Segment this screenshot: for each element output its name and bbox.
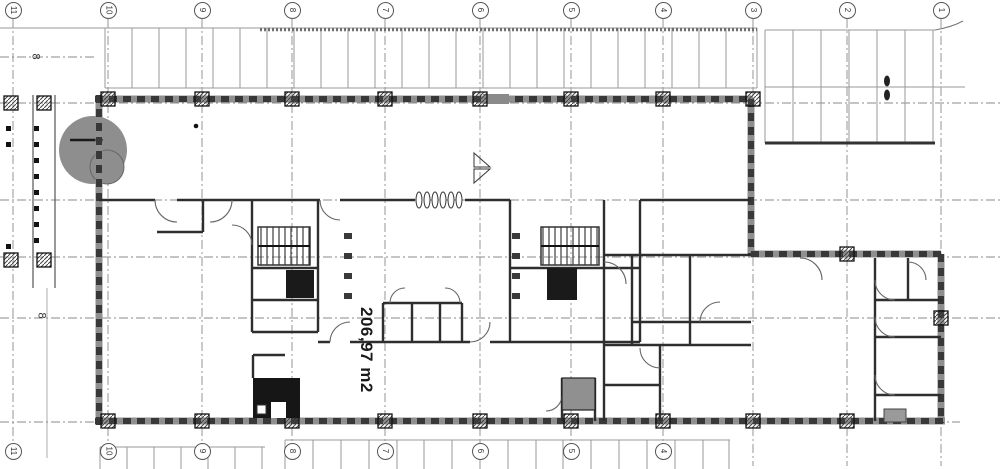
grid-label: 9 [198, 449, 206, 453]
grid-lines [0, 19, 1000, 466]
stair-core-right [541, 227, 599, 300]
grid-bubble-top: 6 [472, 2, 489, 19]
grid-label: 2 [843, 8, 851, 12]
grid-label: 10 [104, 447, 112, 456]
wall-stubs [344, 233, 520, 299]
grid-label: 9 [198, 8, 206, 12]
grid-bubble-top: 2 [839, 2, 856, 19]
grid-label: 5 [567, 449, 575, 453]
grid-label: 4 [659, 449, 667, 453]
area-label: 206,97 m2 [356, 307, 376, 393]
grid-label: 6 [476, 449, 484, 453]
grid-bubble-top: 10 [100, 2, 117, 19]
row-marker: 8 [36, 312, 47, 318]
entrance-core-black [253, 378, 300, 418]
grid-label: 3 [749, 8, 757, 12]
stair-core-left [258, 227, 314, 298]
grid-label: 11 [9, 6, 17, 14]
grid-bubble-bottom: 11 [5, 443, 22, 460]
grid-bubble-top: 4 [655, 2, 672, 19]
grid-label: 8 [288, 449, 296, 453]
grid-label: 10 [104, 6, 112, 15]
double-door-symbol [474, 153, 490, 183]
parking-strip-top-right [765, 21, 965, 143]
floor-plan-drawing [0, 0, 1000, 469]
grid-label: 8 [288, 8, 296, 12]
grid-label: 5 [567, 8, 575, 12]
grid-bubble-bottom: 7 [377, 443, 394, 460]
grid-bubble-bottom: 4 [655, 443, 672, 460]
grid-bubble-bottom: 5 [563, 443, 580, 460]
parking-strip-top [0, 28, 757, 88]
floor-plan-canvas: 11 10 9 8 7 6 5 4 3 2 1 11 10 9 8 7 6 5 … [0, 0, 1000, 469]
grid-bubble-top: 8 [284, 2, 301, 19]
grid-bubble-bottom: 10 [100, 443, 117, 460]
grid-bubble-top: 11 [5, 2, 22, 19]
grid-bubble-bottom: 6 [472, 443, 489, 460]
grid-bubble-top: 5 [563, 2, 580, 19]
grid-bubble-top: 7 [377, 2, 394, 19]
grid-label: 1 [937, 8, 945, 12]
grid-label: 7 [381, 449, 389, 453]
grid-bubble-bottom: 9 [194, 443, 211, 460]
grid-bubble-top: 3 [745, 2, 762, 19]
grid-label: 4 [659, 8, 667, 12]
grid-bubble-top: 9 [194, 2, 211, 19]
grid-label: 11 [9, 447, 17, 455]
shaft-circle [59, 116, 127, 184]
grid-label: 7 [381, 8, 389, 12]
grid-bubble-top: 1 [933, 2, 950, 19]
grid-bubble-bottom: 8 [284, 443, 301, 460]
row-marker: 8 [30, 53, 41, 59]
grid-label: 6 [476, 8, 484, 12]
